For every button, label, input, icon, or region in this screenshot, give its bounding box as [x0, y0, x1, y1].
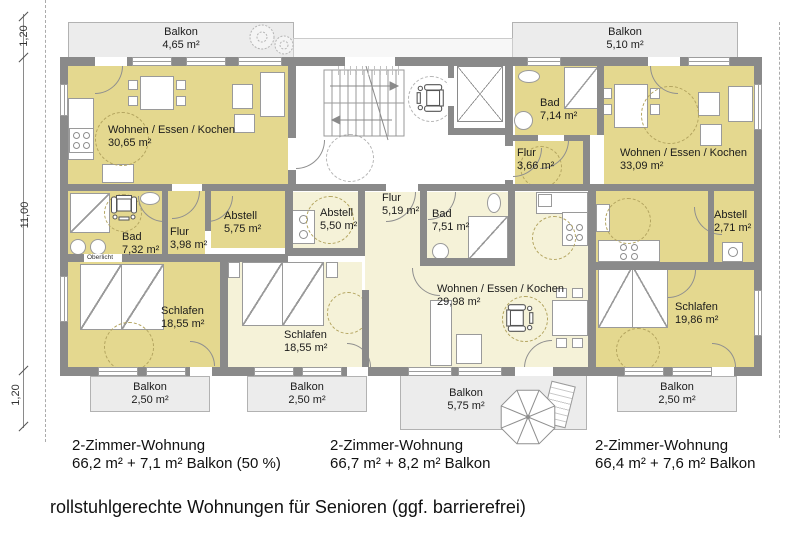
dimension-label-middle: 11,00	[19, 195, 31, 235]
door-opening	[95, 57, 127, 66]
wheelchair-icon	[110, 192, 138, 222]
coffee-table	[234, 114, 255, 133]
wall-interior	[588, 262, 762, 270]
chair	[556, 338, 567, 348]
turning-circle	[616, 328, 660, 372]
window	[688, 57, 730, 66]
sofa	[456, 334, 482, 364]
room-label-mid-living: Wohnen / Essen / Kochen29,98 m²	[437, 283, 564, 309]
balcony-label-top-right: Balkon5,10 m²	[512, 26, 738, 52]
stove-icon	[69, 128, 94, 153]
balcony-label-bottom-right: Balkon2,50 m²	[617, 381, 737, 407]
room-label-left-flur: Flur3,98 m²	[170, 226, 207, 252]
apartment-summary-2: 2-Zimmer-Wohnung66,7 m² + 8,2 m² Balkon	[330, 437, 491, 472]
property-guide-line-left	[45, 0, 46, 442]
room-label-mid-schlafen: Schlafen18,55 m²	[284, 329, 327, 355]
armchair	[698, 92, 720, 116]
turning-circle	[532, 216, 576, 260]
dimension-label-top: 1,20	[18, 16, 30, 56]
window	[98, 367, 138, 376]
armchair	[232, 84, 253, 109]
window	[754, 290, 762, 336]
door-opening	[347, 367, 368, 376]
bed-double	[80, 264, 164, 330]
wall-interior	[205, 191, 211, 231]
side-table	[700, 124, 722, 146]
window	[254, 367, 294, 376]
entrance-opening	[345, 57, 395, 66]
room-label-mid-bad: Bad7,51 m²	[432, 208, 469, 234]
window	[527, 57, 561, 66]
balcony-label-bottom-mid-left: Balkon2,50 m²	[247, 381, 367, 407]
wall-interior	[508, 184, 515, 258]
window	[146, 367, 186, 376]
wall-interior	[420, 258, 515, 266]
door-opening	[505, 146, 513, 180]
sideboard	[430, 300, 452, 366]
shower	[468, 216, 508, 260]
window	[186, 57, 226, 66]
window	[624, 367, 664, 376]
room-label-mid-flur: Flur5,19 m²	[382, 192, 419, 218]
sofa	[260, 72, 285, 117]
washbasin	[90, 239, 106, 255]
window	[302, 367, 342, 376]
turning-circle	[641, 86, 699, 144]
door-opening	[712, 367, 734, 376]
window	[754, 84, 762, 130]
door-opening	[288, 138, 296, 170]
chair	[572, 288, 583, 298]
room-label-left-abstell: Abstell5,75 m²	[224, 210, 261, 236]
balcony-label-top-left: Balkon4,65 m²	[68, 26, 294, 52]
room-label-oberlicht: Oberlicht	[87, 254, 113, 261]
wall-interior	[220, 254, 228, 375]
wall-elevator	[448, 128, 513, 135]
apartment-summary-3: 2-Zimmer-Wohnung66,4 m² + 7,6 m² Balkon	[595, 437, 756, 472]
nightstand	[228, 262, 240, 278]
window	[408, 367, 452, 376]
washbasin	[70, 239, 86, 255]
room-label-right-flur: Flur3,66 m²	[517, 147, 554, 173]
floor-plan: 1,20 11,00 1,20	[0, 0, 800, 534]
chair	[128, 96, 138, 106]
wall-interior	[288, 248, 365, 256]
washer	[722, 242, 743, 262]
balcony-label-bottom-mid-big: Balkon5,75 m²	[402, 387, 530, 413]
wall-interior	[285, 184, 293, 256]
room-label-left-living: Wohnen / Essen / Kochen30,65 m²	[108, 124, 235, 150]
door-opening	[648, 57, 680, 66]
kitchen-sink	[102, 164, 134, 183]
wall-interior	[420, 184, 427, 258]
wall-interior	[597, 57, 604, 135]
bed-double	[242, 262, 324, 326]
room-label-right-schlafen: Schlafen19,86 m²	[675, 301, 718, 327]
chair	[176, 80, 186, 90]
window	[60, 84, 68, 116]
wall-interior	[358, 184, 365, 248]
property-guide-line-right	[779, 22, 780, 438]
turning-circle	[104, 322, 154, 372]
room-label-left-schlafen: Schlafen18,55 m²	[161, 305, 204, 331]
chair	[572, 338, 583, 348]
wall-interior	[583, 135, 590, 185]
sofa	[728, 86, 753, 122]
nightstand	[326, 262, 338, 278]
room-label-mid-abstell: Abstell5,50 m²	[320, 207, 357, 233]
apartment-summary-1: 2-Zimmer-Wohnung66,2 m² + 7,1 m² Balkon …	[72, 437, 281, 472]
room-label-right-abstell: Abstell2,71 m²	[714, 209, 751, 235]
door-opening	[190, 367, 212, 376]
wall-interior	[162, 191, 168, 254]
toilet	[518, 70, 540, 83]
door-opening	[538, 135, 564, 141]
stove-icon	[618, 243, 643, 261]
window	[238, 57, 282, 66]
kitchen-sink	[538, 194, 552, 207]
turning-circle	[605, 198, 651, 244]
wall-interior	[362, 290, 369, 367]
entrance-grate	[338, 66, 402, 75]
entrance-canopy	[293, 38, 513, 58]
bed-double	[598, 266, 668, 328]
window	[458, 367, 502, 376]
dimension-label-bottom: 1,20	[10, 375, 22, 415]
chair	[128, 80, 138, 90]
washbasin	[514, 111, 533, 130]
stairs-icon	[294, 62, 508, 192]
wheelchair-icon	[415, 83, 447, 113]
balcony-label-bottom-left: Balkon2,50 m²	[90, 381, 210, 407]
elevator-door-opening	[448, 78, 454, 106]
toilet	[487, 193, 501, 213]
room-label-right-living: Wohnen / Essen / Kochen33,09 m²	[620, 147, 747, 173]
door-opening	[515, 367, 553, 376]
plan-caption: rollstuhlgerechte Wohnungen für Senioren…	[50, 497, 526, 518]
wall-interior	[288, 57, 296, 191]
room-label-right-bad: Bad7,14 m²	[540, 97, 577, 123]
door-opening	[172, 184, 202, 191]
chair	[176, 96, 186, 106]
dining-table	[140, 76, 174, 110]
door-opening	[386, 184, 418, 191]
wall-interior	[588, 184, 596, 374]
window	[132, 57, 172, 66]
window	[672, 367, 712, 376]
room-label-left-bad: Bad7,32 m²	[122, 231, 159, 257]
window	[60, 276, 68, 322]
